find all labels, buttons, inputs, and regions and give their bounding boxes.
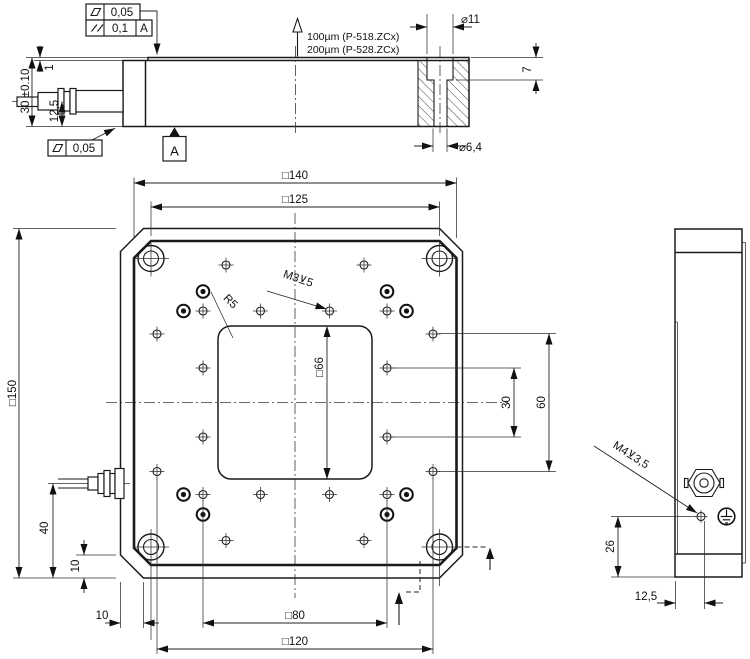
dim-12-5: 12,5 [635, 591, 657, 603]
ground-icon [718, 508, 735, 525]
stage-drawing: 0,05 0,1 A 100µm (P-518.ZCx) 200µm (P-52… [0, 0, 750, 659]
datum-label: A [170, 144, 179, 159]
dim-connector40: 40 [39, 522, 51, 535]
dim-sq66: □66 [314, 357, 326, 377]
parallelism-datum: A [140, 23, 148, 35]
dim-height30: 30 ±0.10 [20, 69, 32, 114]
dim-chamfer10v: 10 [70, 560, 82, 573]
dim-cb-depth: 7 [522, 66, 534, 72]
parallelism-value: 0,1 [112, 23, 128, 35]
flatness-top-value: 0,05 [111, 7, 133, 19]
travel-line2: 200µm (P-528.ZCx) [307, 44, 399, 56]
dim-sq150: □150 [7, 380, 19, 406]
dim-pitch60: 60 [536, 396, 548, 409]
dim-sq80: □80 [285, 610, 305, 622]
dim-chamfer10h: 10 [96, 610, 109, 622]
dim-26: 26 [605, 540, 617, 553]
dim-sq125: □125 [282, 194, 308, 206]
technical-drawing-page: 0,05 0,1 A 100µm (P-518.ZCx) 200µm (P-52… [0, 0, 750, 659]
dim-conn-height: 12,5 [49, 100, 61, 122]
travel-line1: 100µm (P-518.ZCx) [307, 31, 399, 43]
dim-pitch30: 30 [501, 396, 513, 409]
dim-step1: 1 [44, 64, 56, 70]
dim-dia64: ⌀6,4 [459, 142, 483, 154]
dim-dia11: ⌀11 [461, 14, 480, 26]
flatness-bottom-value: 0,05 [73, 143, 95, 155]
section-hatch [418, 62, 427, 127]
dim-sq140: □140 [282, 170, 308, 182]
dim-sq120: □120 [282, 636, 308, 648]
